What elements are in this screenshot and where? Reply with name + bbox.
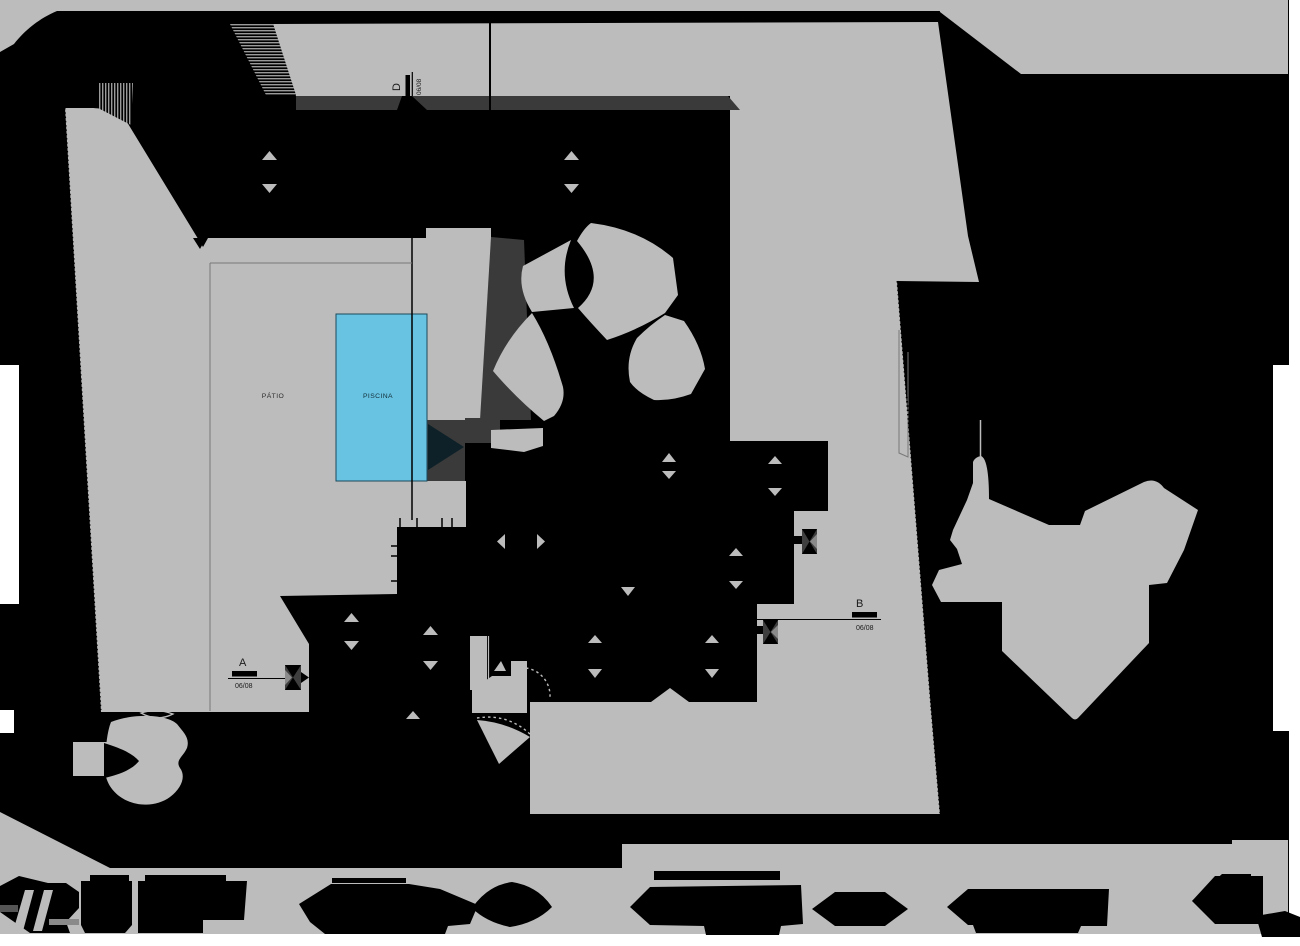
svg-text:06/08: 06/08 [416, 78, 423, 95]
svg-text:06/08: 06/08 [235, 683, 253, 690]
svg-text:B: B [856, 598, 863, 610]
svg-text:06/08: 06/08 [856, 625, 874, 632]
svg-text:PISCINA: PISCINA [363, 393, 393, 400]
svg-text:A: A [239, 657, 247, 669]
svg-text:D: D [391, 83, 403, 91]
svg-text:PÁTIO: PÁTIO [262, 391, 284, 400]
